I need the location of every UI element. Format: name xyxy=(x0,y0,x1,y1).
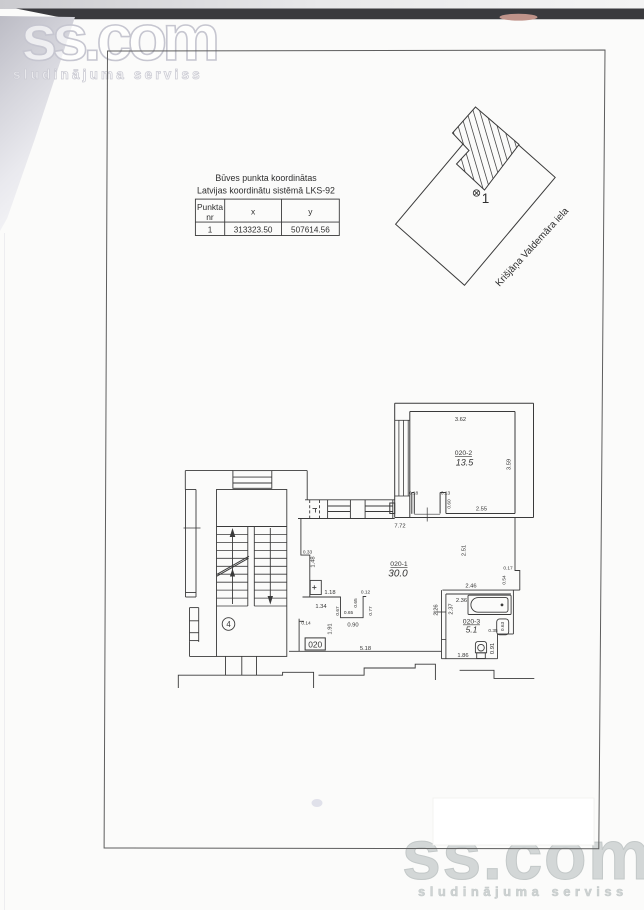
svg-text:2.51: 2.51 xyxy=(462,545,468,556)
svg-text:nr: nr xyxy=(206,212,214,222)
svg-text:1: 1 xyxy=(208,225,213,234)
svg-text:3.59: 3.59 xyxy=(507,459,513,470)
svg-text:2.55: 2.55 xyxy=(476,507,487,513)
svg-text:507614.56: 507614.56 xyxy=(291,225,330,234)
svg-text:Latvijas koordinātu sistēmā LK: Latvijas koordinātu sistēmā LKS-92 xyxy=(197,185,335,195)
svg-text:0.54: 0.54 xyxy=(502,575,508,585)
svg-text:Punkta: Punkta xyxy=(197,202,223,212)
svg-text:30.0: 30.0 xyxy=(388,569,408,580)
svg-text:0.18: 0.18 xyxy=(409,491,419,497)
svg-text:0.65: 0.65 xyxy=(353,598,359,608)
svg-text:0.77: 0.77 xyxy=(368,606,374,616)
svg-text:2.26: 2.26 xyxy=(434,604,440,615)
svg-text:0.90: 0.90 xyxy=(347,623,358,629)
svg-text:3.62: 3.62 xyxy=(455,417,466,423)
svg-text:0.35: 0.35 xyxy=(488,628,498,634)
svg-text:7.72: 7.72 xyxy=(394,524,405,530)
svg-text:2.36: 2.36 xyxy=(456,598,467,604)
svg-text:0.14: 0.14 xyxy=(301,621,311,627)
svg-text:5.18: 5.18 xyxy=(360,646,371,652)
svg-text:1: 1 xyxy=(482,191,490,206)
svg-text:1.18: 1.18 xyxy=(324,590,335,596)
svg-text:1.48: 1.48 xyxy=(311,556,317,567)
svg-text:y: y xyxy=(308,207,313,217)
svg-text:1.91: 1.91 xyxy=(328,623,334,634)
svg-text:0.12: 0.12 xyxy=(361,590,371,596)
svg-text:0.60: 0.60 xyxy=(447,499,453,509)
svg-text:4: 4 xyxy=(226,620,231,629)
svg-text:0.65: 0.65 xyxy=(344,610,354,616)
svg-text:0.63: 0.63 xyxy=(500,622,506,632)
svg-text:0.13: 0.13 xyxy=(441,491,451,497)
svg-text:2.46: 2.46 xyxy=(465,584,476,590)
svg-text:x: x xyxy=(251,207,256,217)
svg-text:0.33: 0.33 xyxy=(303,550,313,556)
svg-text:1.86: 1.86 xyxy=(457,653,468,659)
svg-text:0.91: 0.91 xyxy=(490,643,496,654)
svg-text:13.5: 13.5 xyxy=(456,458,475,468)
svg-text:Būves punkta koordinātas: Būves punkta koordinātas xyxy=(215,173,317,183)
svg-text:0.67: 0.67 xyxy=(335,606,341,616)
svg-text:2.37: 2.37 xyxy=(449,603,455,614)
svg-text:5.1: 5.1 xyxy=(466,625,478,635)
svg-text:1.34: 1.34 xyxy=(315,604,327,610)
svg-text:020: 020 xyxy=(308,639,322,649)
svg-text:313323.50: 313323.50 xyxy=(234,225,273,234)
svg-text:Krišjāņa Valdemāra iela: Krišjāņa Valdemāra iela xyxy=(494,205,572,289)
svg-text:0.17: 0.17 xyxy=(503,566,513,572)
